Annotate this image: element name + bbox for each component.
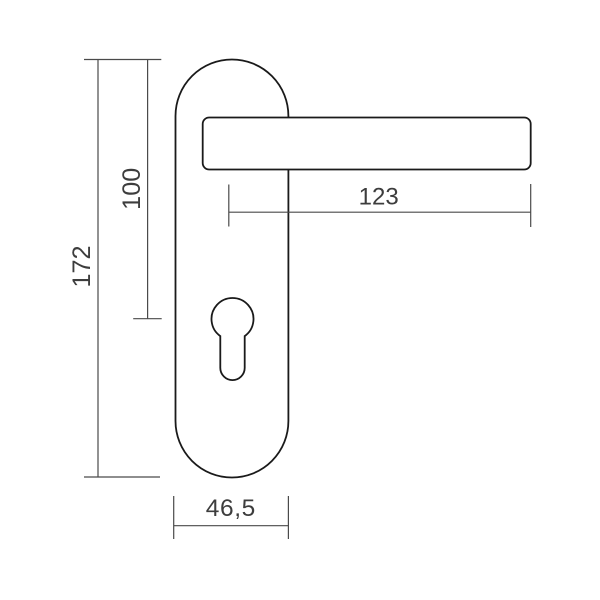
svg-text:100: 100 <box>118 168 146 210</box>
svg-text:172: 172 <box>68 245 96 287</box>
svg-text:123: 123 <box>359 184 399 211</box>
svg-text:46,5: 46,5 <box>206 495 256 522</box>
